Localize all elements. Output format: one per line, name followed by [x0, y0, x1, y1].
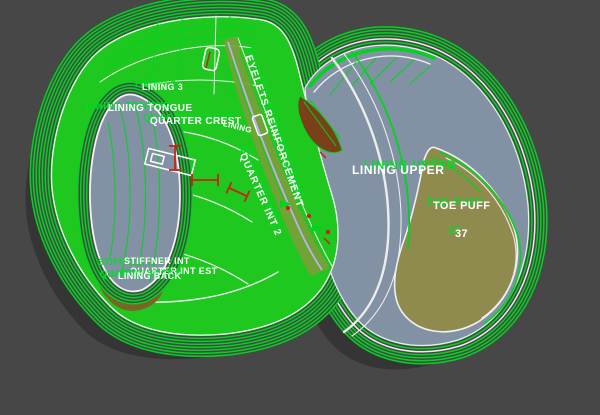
label-lining-3[interactable]: LINING 3 LINING 3 — [142, 83, 183, 92]
label-stiffner-int[interactable]: STIFFNER INT STIFFNER INT — [124, 257, 190, 266]
label-lining-upper[interactable]: LINING UPPER LINING UPPER — [352, 164, 445, 176]
cad-pattern-viewport[interactable]: LINING 3 LINING 3 LINING TONGUE LINING T… — [0, 0, 600, 415]
label-lining-back[interactable]: LINING BACK LINING BACK — [118, 272, 181, 281]
label-toe-puff[interactable]: TOE PUFF TOE PUFF — [433, 201, 490, 212]
label-toe-puff-size[interactable]: 37 37 — [455, 229, 468, 240]
